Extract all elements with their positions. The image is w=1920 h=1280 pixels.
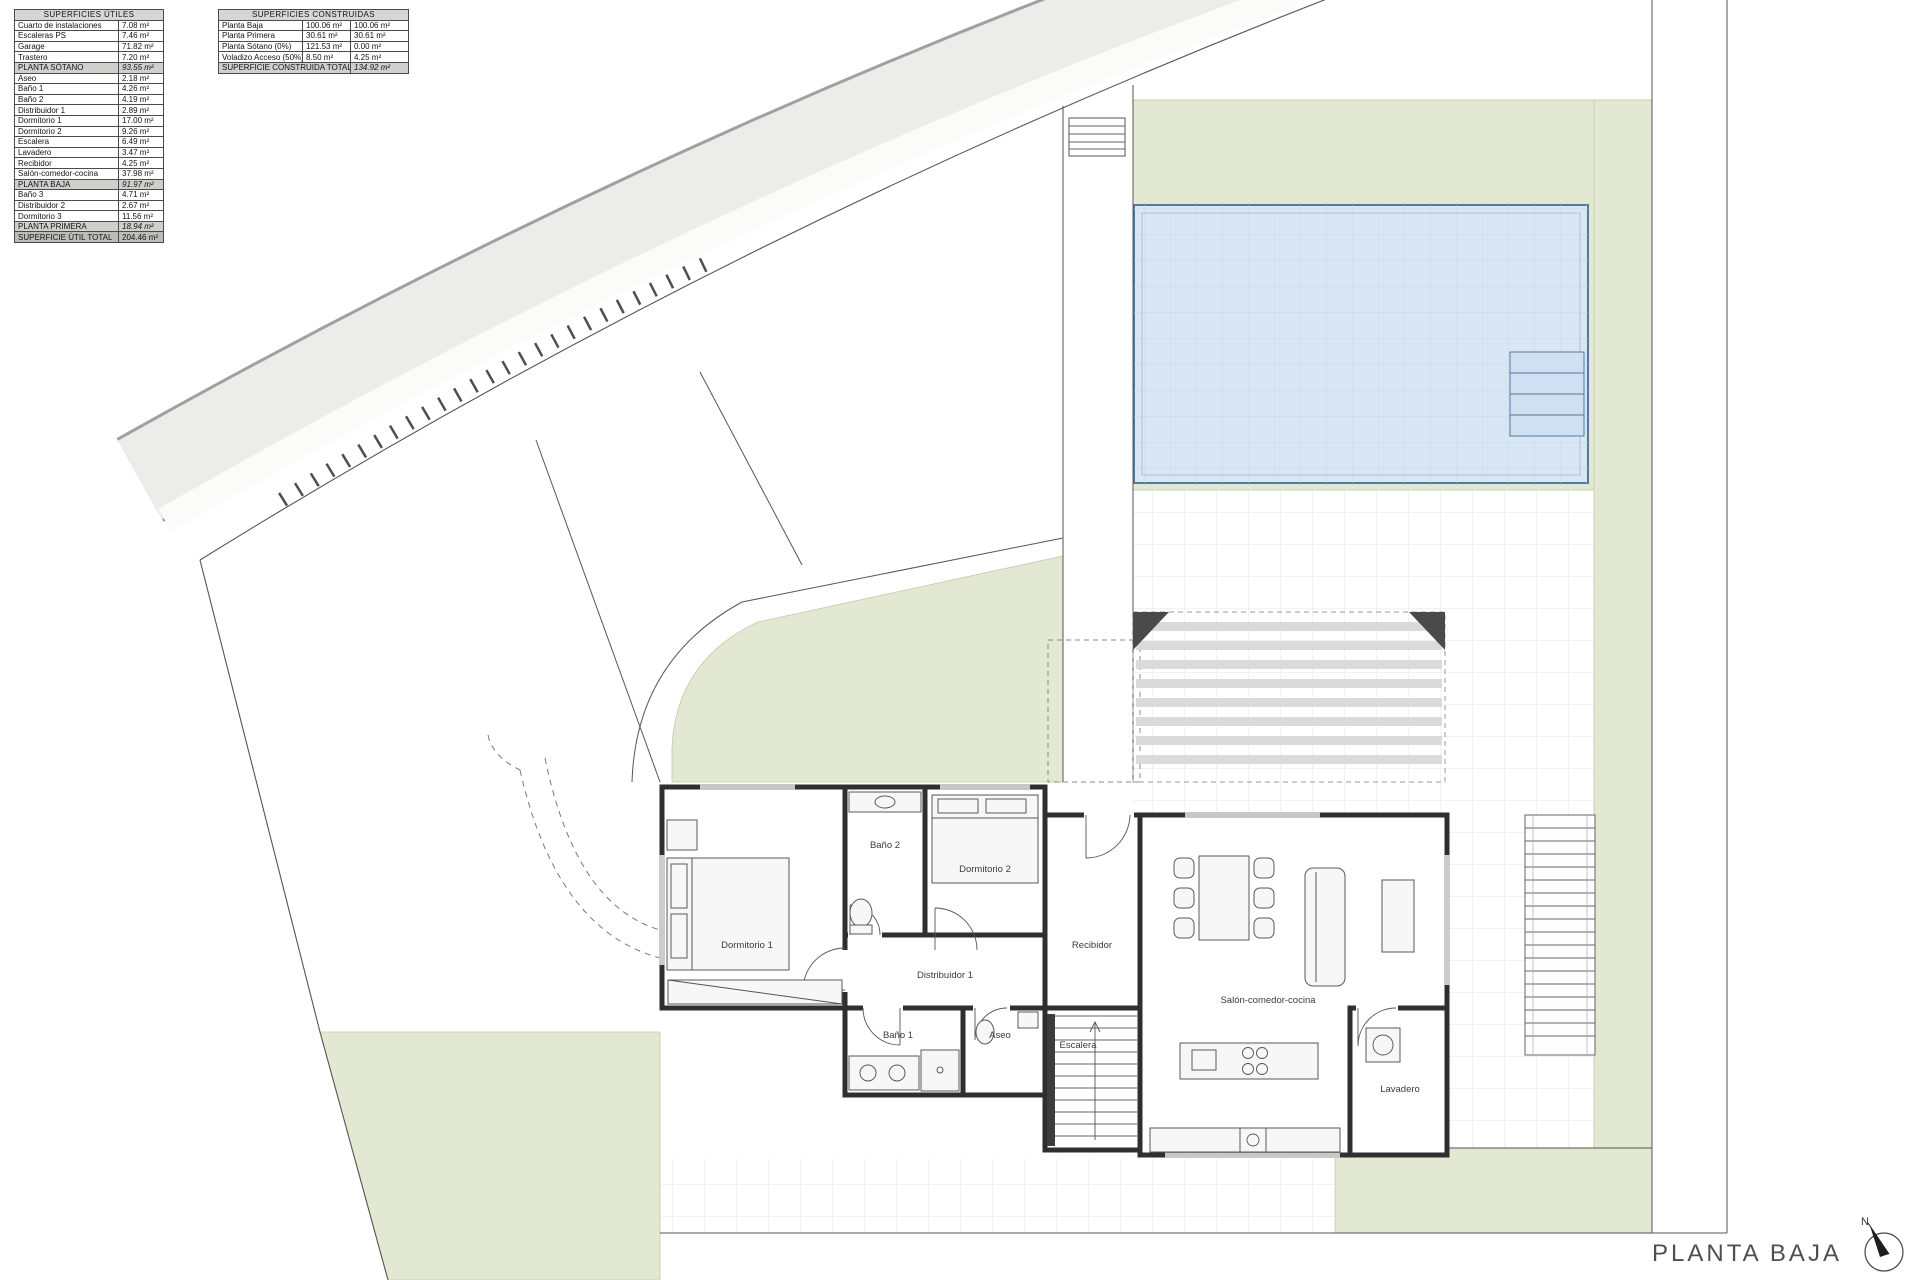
bano1-fixtures [849, 1050, 959, 1091]
road [140, 0, 1292, 520]
table-subtotal-row: PLANTA SÓTANO93.55 m² [15, 62, 164, 73]
closet-dormitorio1 [668, 980, 842, 1004]
table-row: Planta Baja100.06 m²100.06 m² [219, 20, 409, 31]
table-subtotal-row: PLANTA BAJA91.97 m² [15, 179, 164, 190]
table-row: Aseo2.18 m² [15, 73, 164, 84]
washer [1366, 1028, 1400, 1062]
table-title-row: SUPERFICIES CONSTRUIDAS [219, 10, 409, 21]
kitchen-island [1180, 1043, 1318, 1079]
table-total-row: SUPERFICIE CONSTRUIDA TOTAL134.92 m² [219, 62, 409, 73]
table-row: Baño 24.19 m² [15, 94, 164, 105]
table-row: Voladizo Acceso (50%)8.50 m²4.25 m² [219, 52, 409, 63]
table-row: Dormitorio 29.26 m² [15, 126, 164, 137]
swimming-pool [1134, 205, 1588, 483]
north-arrow-icon: N [1846, 1212, 1918, 1278]
table-title-row: SUPERFICIES ÚTILES [15, 10, 164, 21]
label-bano2: Baño 2 [870, 840, 900, 851]
superficies-construidas-table: SUPERFICIES CONSTRUIDAS Planta Baja100.0… [218, 9, 409, 74]
access-steps [1069, 118, 1125, 156]
room-recibidor [1045, 815, 1140, 1008]
table-row: Recibidor4.25 m² [15, 158, 164, 169]
superficies-utiles-table: SUPERFICIES ÚTILES Cuarto de instalacion… [14, 9, 164, 243]
label-distribuidor1: Distribuidor 1 [917, 970, 973, 981]
table-row: Trastero7.20 m² [15, 52, 164, 63]
table-row: Planta Primera30.61 m²30.61 m² [219, 31, 409, 42]
table-row: Escaleras PS7.46 m² [15, 31, 164, 42]
house: Dormitorio 1 Baño 2 Dormitorio 2 Distrib… [659, 784, 1450, 1158]
table-row: Dormitorio 311.56 m² [15, 211, 164, 222]
plan-title: PLANTA BAJA [1652, 1240, 1842, 1268]
north-label: N [1861, 1216, 1869, 1228]
table-row: Cuarto de instalaciones7.08 m² [15, 20, 164, 31]
label-escalera: Escalera [1060, 1040, 1098, 1051]
pool-steps [1510, 352, 1584, 436]
driveway-arcs [488, 735, 660, 958]
table-row: Planta Sótano (0%)121.53 m²0.00 m² [219, 41, 409, 52]
table-row: Distribuidor 12.89 m² [15, 105, 164, 116]
label-aseo: Aseo [989, 1030, 1011, 1041]
sofa [1305, 868, 1345, 986]
kitchen-counter [1150, 1128, 1340, 1152]
table-row: Garage71.82 m² [15, 41, 164, 52]
tv-unit [1382, 880, 1414, 952]
table-row: Baño 14.26 m² [15, 84, 164, 95]
dining-table [1174, 856, 1274, 940]
table-title: SUPERFICIES CONSTRUIDAS [219, 10, 409, 21]
table-row: Lavadero3.47 m² [15, 147, 164, 158]
table-row: Dormitorio 117.00 m² [15, 115, 164, 126]
room-escalera [1045, 1008, 1140, 1150]
label-dormitorio2: Dormitorio 2 [959, 864, 1011, 875]
exterior-stair [1525, 815, 1595, 1055]
floor-plan-sheet: Dormitorio 1 Baño 2 Dormitorio 2 Distrib… [0, 0, 1920, 1280]
label-lavadero: Lavadero [1380, 1084, 1420, 1095]
table-subtotal-row: PLANTA PRIMERA18.94 m² [15, 221, 164, 232]
label-recibidor: Recibidor [1072, 940, 1112, 951]
label-bano1: Baño 1 [883, 1030, 913, 1041]
table-total-row: SUPERFICIE ÚTIL TOTAL204.46 m² [15, 232, 164, 243]
site-plan-drawing: Dormitorio 1 Baño 2 Dormitorio 2 Distrib… [0, 0, 1920, 1280]
table-row: Salón-comedor-cocina37.98 m² [15, 168, 164, 179]
label-dormitorio1: Dormitorio 1 [721, 940, 773, 951]
label-salon: Salón-comedor-cocina [1220, 995, 1316, 1006]
table-row: Escalera6.49 m² [15, 137, 164, 148]
table-row: Baño 34.71 m² [15, 190, 164, 201]
table-title: SUPERFICIES ÚTILES [15, 10, 164, 21]
table-row: Distribuidor 22.67 m² [15, 200, 164, 211]
